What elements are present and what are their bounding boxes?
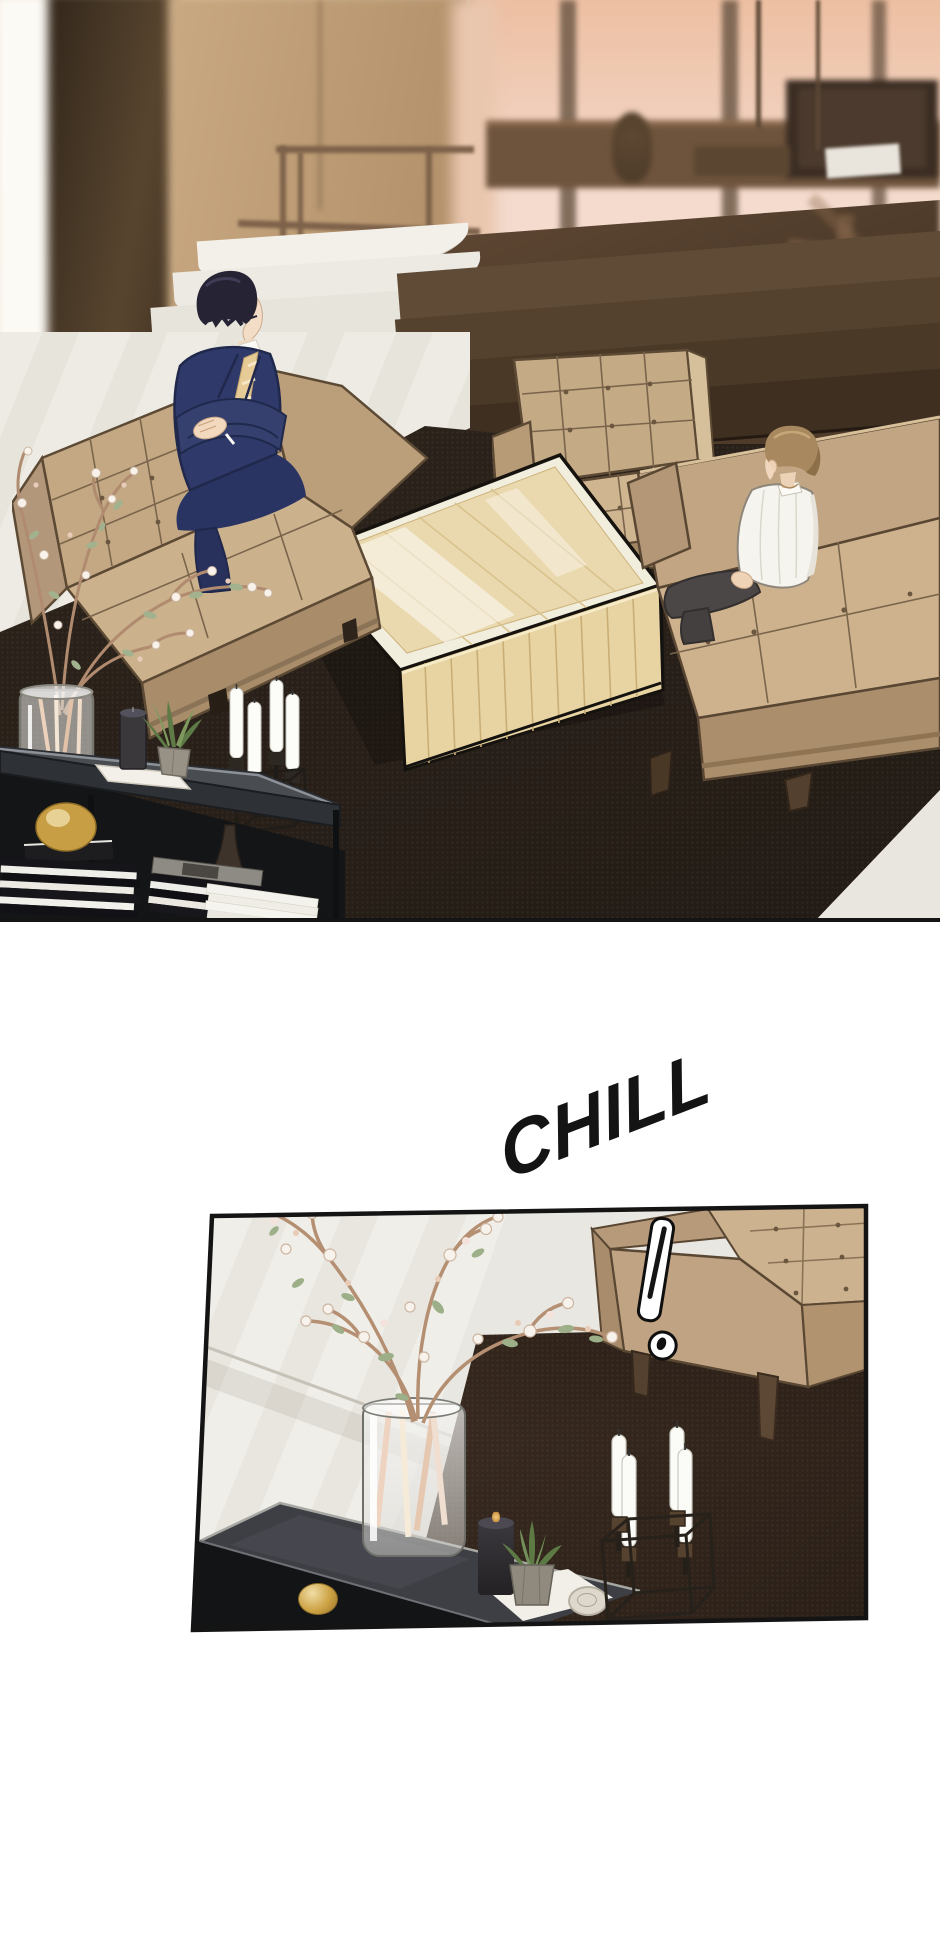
lamp-pole: [816, 0, 820, 150]
laptop: [825, 143, 901, 178]
man-in-white-shirt: [592, 340, 842, 645]
sfx-chill: CHILL: [493, 1012, 771, 1197]
panel-closeup-border: [150, 1185, 890, 1655]
desk-items: [694, 146, 790, 176]
panel-lounge-wide: [0, 0, 940, 922]
railing-bar: [276, 146, 474, 153]
window-mullion: [722, 0, 738, 238]
railing-post: [280, 146, 286, 244]
desk-plant: [612, 112, 652, 182]
console-table: [0, 655, 355, 922]
window-mullion: [560, 0, 576, 238]
lamp-pole: [756, 0, 761, 128]
comic-page: CHILL: [0, 0, 940, 1956]
wood-wall-seam: [318, 0, 322, 210]
